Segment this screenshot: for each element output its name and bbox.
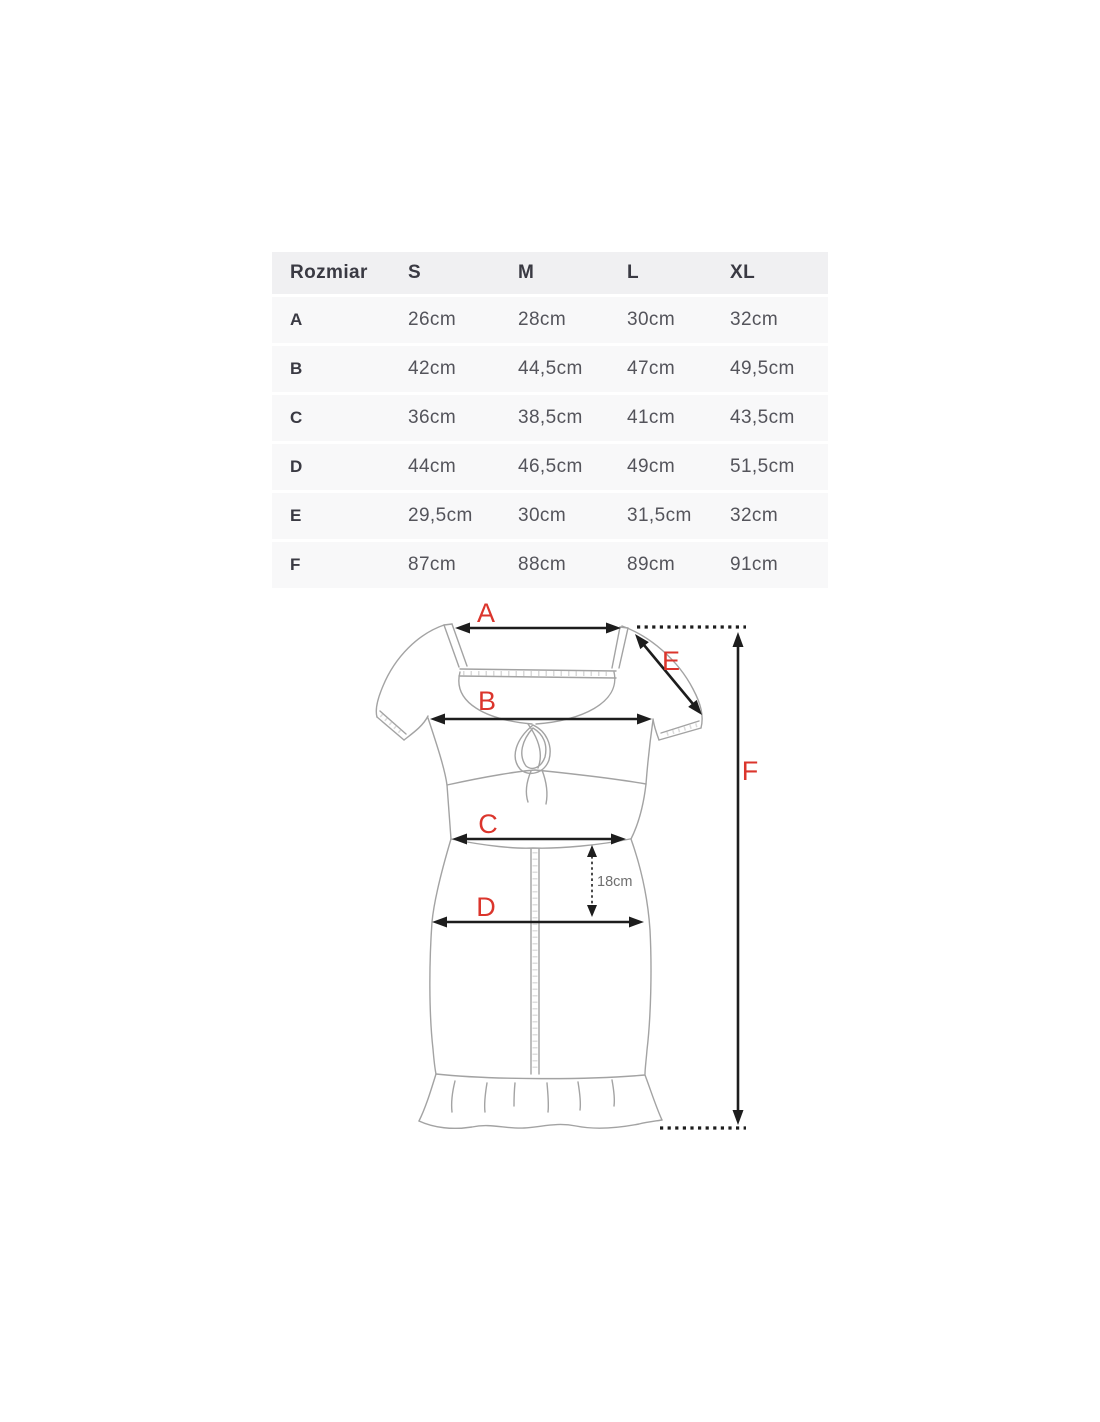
inner-measure-arrow-18cm bbox=[587, 845, 597, 917]
measure-arrow-d bbox=[432, 917, 644, 928]
label-b: B bbox=[478, 686, 496, 716]
label-e: E bbox=[662, 646, 680, 676]
dress-sketch-outline bbox=[376, 624, 702, 1128]
measure-arrow-b bbox=[430, 714, 652, 725]
label-18cm: 18cm bbox=[597, 874, 632, 890]
label-c: C bbox=[478, 809, 498, 839]
label-d: D bbox=[476, 892, 496, 922]
label-a: A bbox=[477, 598, 495, 628]
size-guide-page: Rozmiar S M L XL A 26cm 28cm 30cm 32cm B… bbox=[0, 0, 1100, 1422]
dress-measurement-diagram: A B C D E F 18cm bbox=[0, 0, 1100, 1422]
measure-arrow-f bbox=[733, 632, 744, 1125]
label-f: F bbox=[742, 756, 759, 786]
